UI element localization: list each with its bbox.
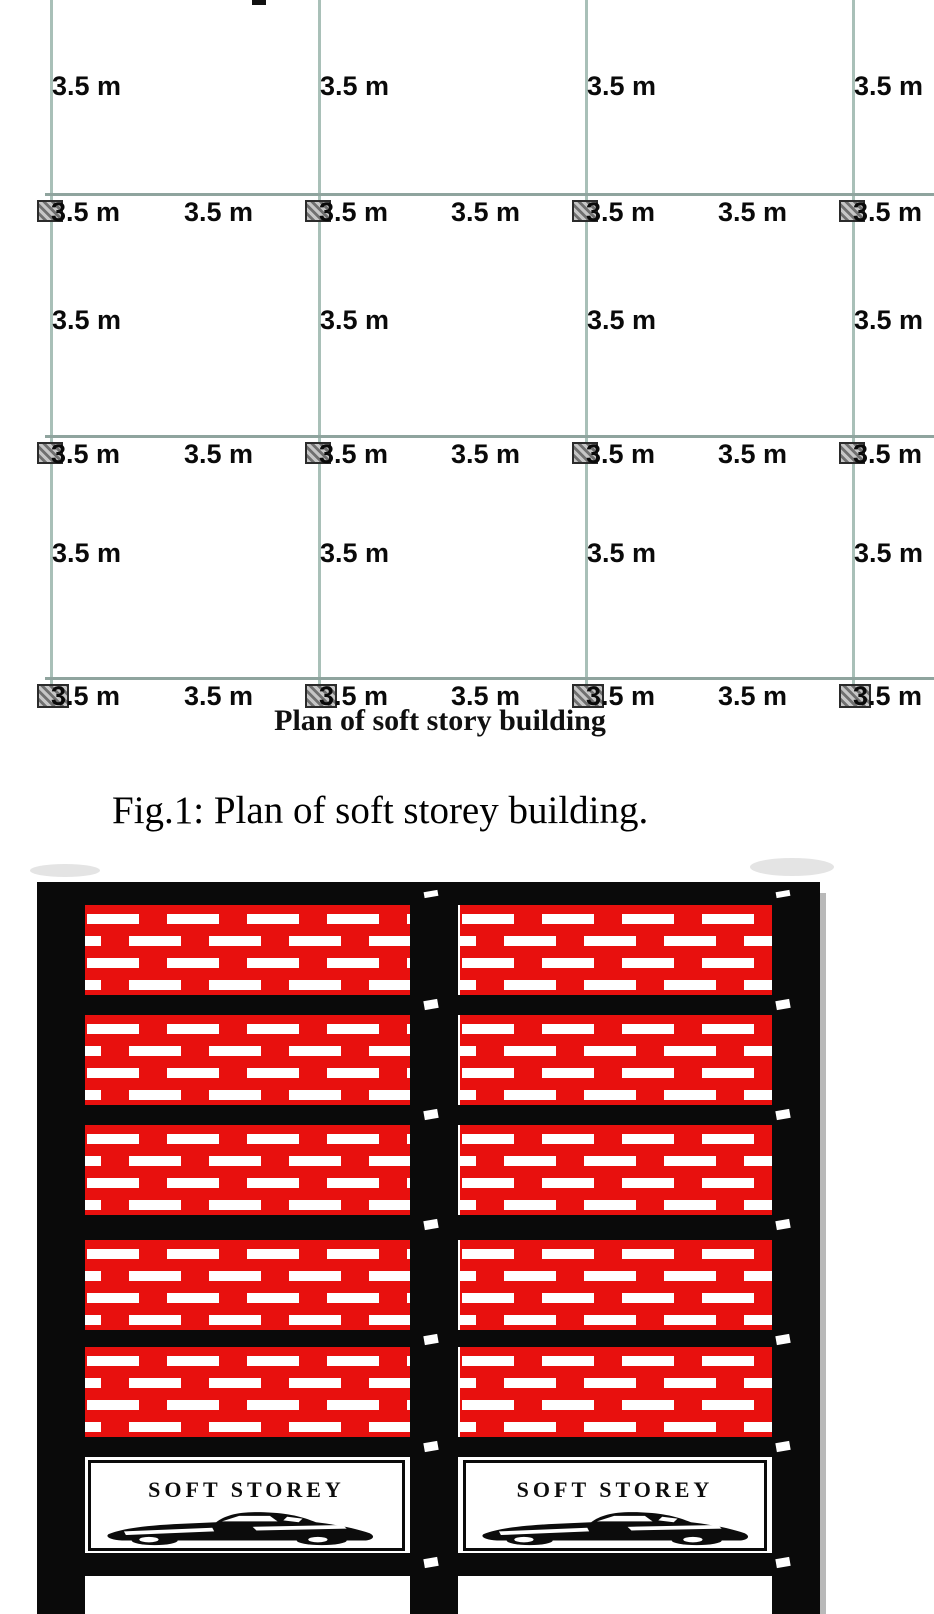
elevation-diagram: SOFT STOREY SOFT STOREY xyxy=(0,0,934,1614)
soft-storey-label: SOFT STOREY xyxy=(466,1477,764,1503)
elevation-column xyxy=(410,882,458,1614)
brick-infill-panel xyxy=(460,1347,772,1437)
scan-smudge xyxy=(30,864,100,877)
soft-storey-panel: SOFT STOREY xyxy=(463,1460,767,1551)
elevation-column xyxy=(772,882,820,1614)
brick-infill-panel xyxy=(460,1125,772,1215)
brick-infill-panel xyxy=(85,1015,410,1105)
figure-page: 3.5 m3.5 m3.5 m3.5 m3.5 m3.5 m3.5 m3.5 m… xyxy=(0,0,934,1614)
brick-infill-panel xyxy=(85,1240,410,1330)
soft-storey-label: SOFT STOREY xyxy=(91,1477,402,1503)
open-storey-panel xyxy=(88,1576,405,1614)
brick-infill-panel xyxy=(460,1015,772,1105)
scan-smudge xyxy=(750,858,834,876)
open-storey-panel xyxy=(463,1576,767,1614)
column-shadow xyxy=(820,893,826,1614)
car-icon xyxy=(474,1504,762,1546)
car-icon xyxy=(99,1504,387,1546)
elevation-column xyxy=(37,882,85,1614)
brick-infill-panel xyxy=(460,905,772,995)
brick-infill-panel xyxy=(85,905,410,995)
brick-infill-panel xyxy=(85,1347,410,1437)
soft-storey-panel: SOFT STOREY xyxy=(88,1460,405,1551)
brick-infill-panel xyxy=(460,1240,772,1330)
brick-infill-panel xyxy=(85,1125,410,1215)
